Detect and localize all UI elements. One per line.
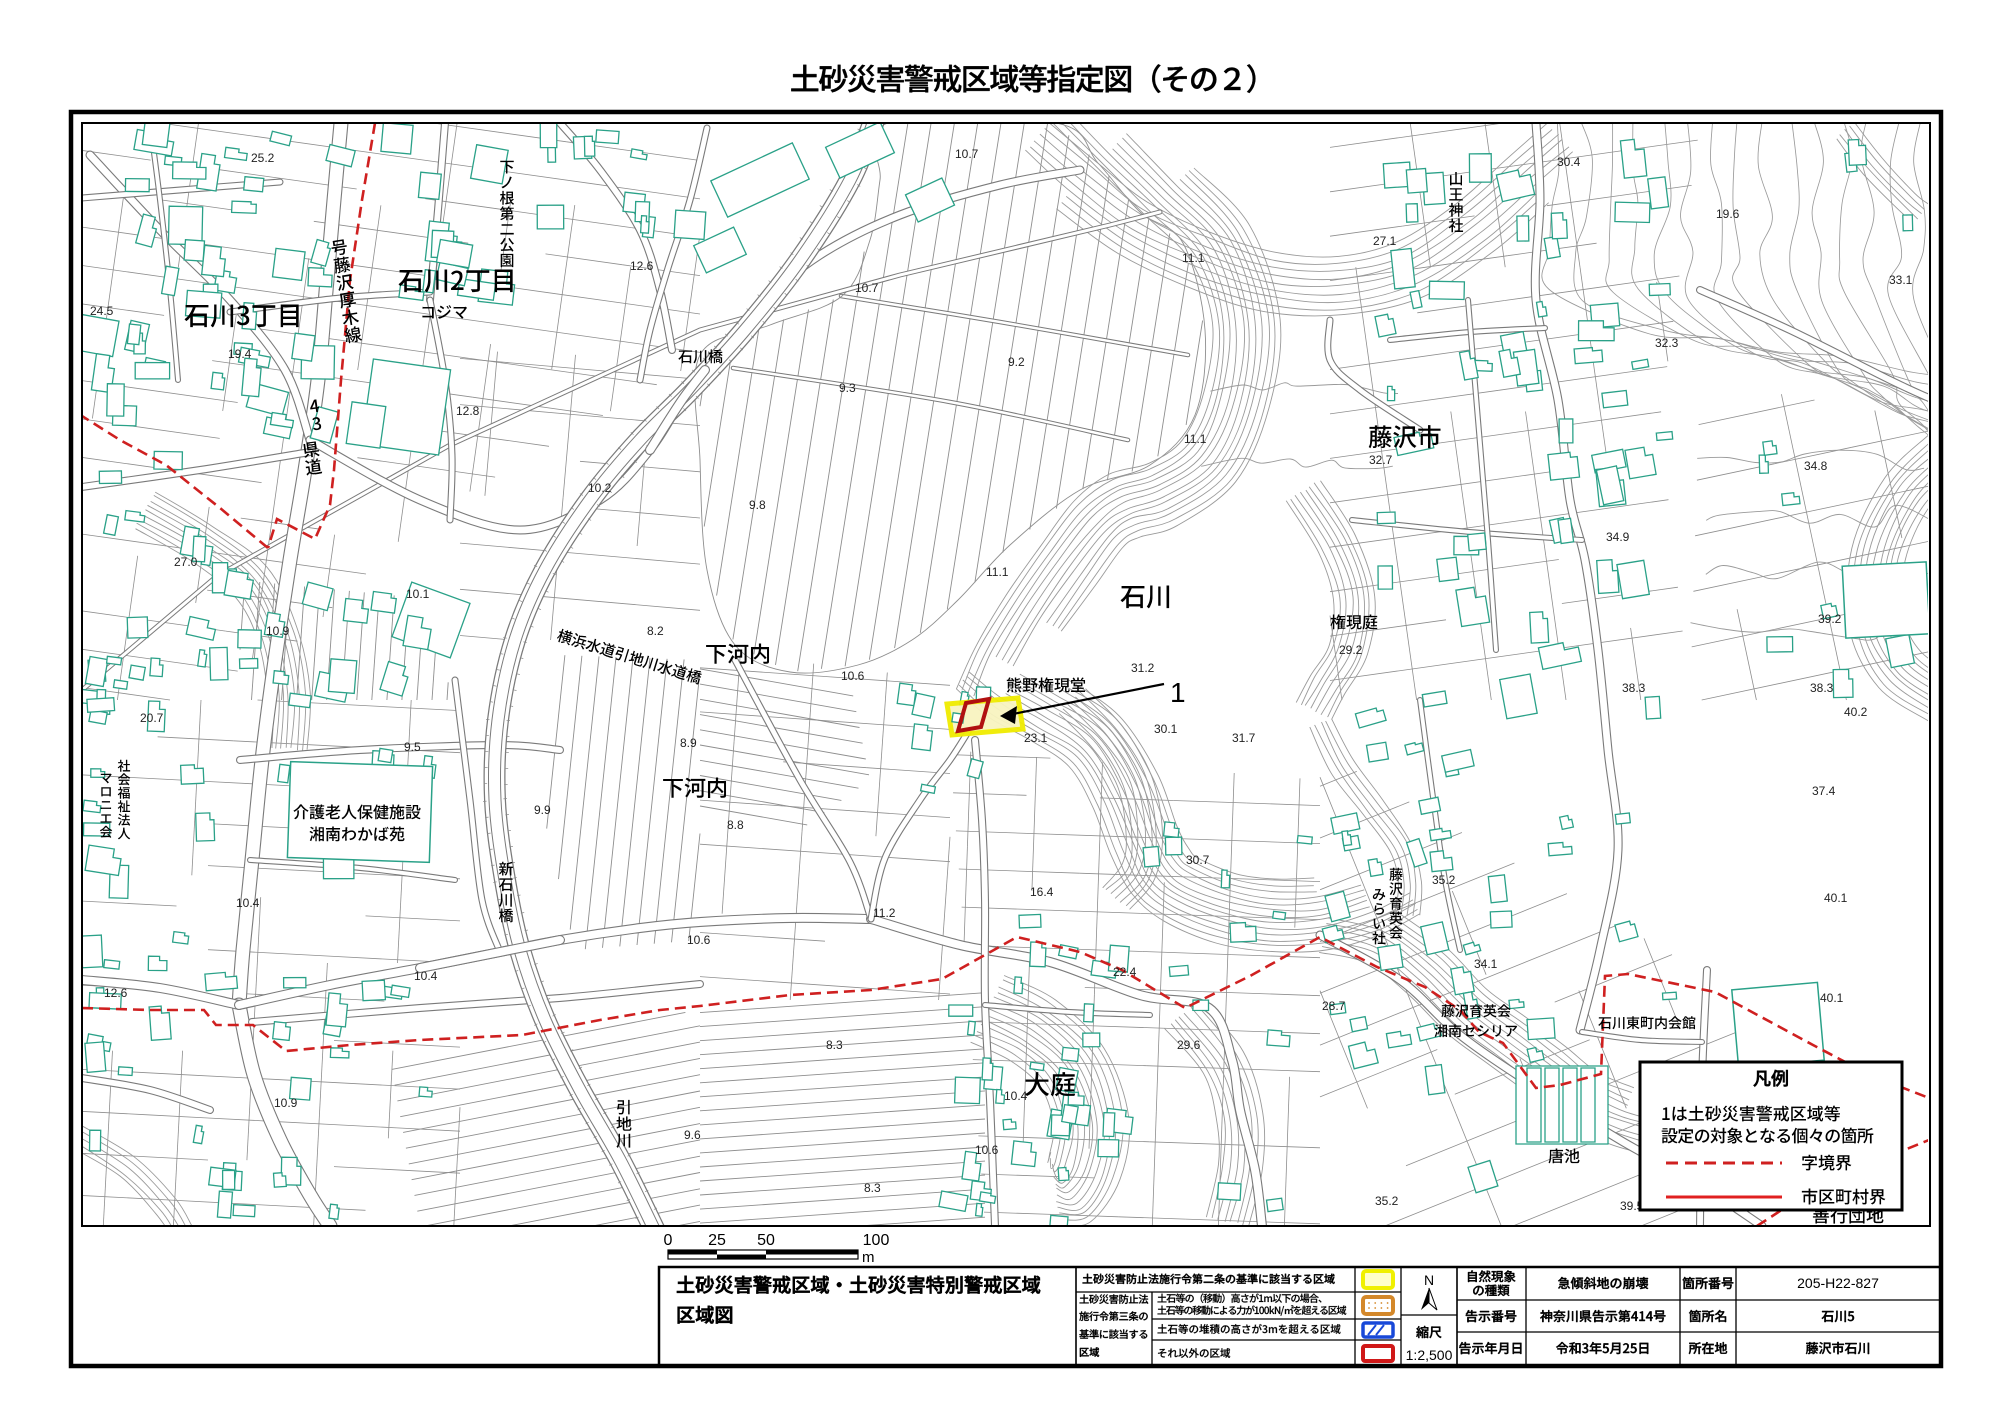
svg-text:30.1: 30.1 (1154, 722, 1178, 736)
svg-text:10.4: 10.4 (236, 896, 260, 910)
svg-text:11.2: 11.2 (873, 906, 896, 920)
svg-text:10.7: 10.7 (855, 281, 879, 295)
svg-text:30.7: 30.7 (1186, 853, 1210, 867)
svg-text:38.3: 38.3 (1810, 681, 1834, 695)
svg-text:1: 1 (1170, 677, 1186, 708)
svg-text:29.6: 29.6 (1177, 1038, 1201, 1052)
svg-text:40.2: 40.2 (1844, 705, 1868, 719)
svg-text:10.6: 10.6 (975, 1143, 999, 1157)
svg-text:10.1: 10.1 (406, 587, 430, 601)
svg-text:19.4: 19.4 (228, 347, 252, 361)
svg-text:8.3: 8.3 (864, 1181, 881, 1195)
svg-text:25.2: 25.2 (251, 151, 275, 165)
svg-text:9.6: 9.6 (684, 1128, 701, 1142)
svg-text:8.3: 8.3 (826, 1038, 843, 1052)
svg-text:50: 50 (757, 1232, 775, 1249)
svg-text:10.9: 10.9 (266, 624, 290, 638)
svg-text:9.9: 9.9 (534, 803, 551, 817)
svg-text:8.9: 8.9 (680, 736, 697, 750)
svg-text:100: 100 (863, 1232, 890, 1249)
svg-text:22.4: 22.4 (1113, 965, 1137, 979)
svg-text:9.2: 9.2 (1008, 355, 1025, 369)
svg-text:10.6: 10.6 (841, 669, 865, 683)
svg-text:40.1: 40.1 (1820, 991, 1844, 1005)
svg-text:24.5: 24.5 (90, 304, 114, 318)
svg-text:40.1: 40.1 (1824, 891, 1848, 905)
svg-text:9.8: 9.8 (749, 498, 766, 512)
svg-text:30.4: 30.4 (1557, 155, 1581, 169)
svg-text:12.6: 12.6 (104, 986, 128, 1000)
svg-text:34.1: 34.1 (1474, 957, 1498, 971)
svg-text:27.1: 27.1 (1373, 234, 1397, 248)
svg-text:34.8: 34.8 (1804, 459, 1828, 473)
svg-text:35.2: 35.2 (1432, 873, 1456, 887)
svg-text:8.2: 8.2 (647, 624, 664, 638)
svg-text:23.1: 23.1 (1024, 731, 1048, 745)
svg-text:11.1: 11.1 (986, 565, 1009, 579)
svg-text:12.8: 12.8 (456, 404, 480, 418)
svg-text:10.7: 10.7 (955, 147, 979, 161)
svg-text:25: 25 (708, 1232, 726, 1249)
svg-text:8.8: 8.8 (727, 818, 744, 832)
svg-text:27.0: 27.0 (174, 555, 198, 569)
svg-text:1:2,500: 1:2,500 (1406, 1347, 1453, 1363)
svg-text:205-H22-827: 205-H22-827 (1797, 1275, 1879, 1291)
svg-text:9.3: 9.3 (839, 381, 856, 395)
svg-text:0: 0 (664, 1232, 673, 1249)
svg-text:34.9: 34.9 (1606, 530, 1630, 544)
svg-text:28.7: 28.7 (1322, 999, 1346, 1013)
svg-text:16.4: 16.4 (1030, 885, 1054, 899)
svg-text:32.7: 32.7 (1369, 453, 1393, 467)
svg-text:11.1: 11.1 (1184, 432, 1207, 446)
svg-text:31.7: 31.7 (1232, 731, 1256, 745)
svg-text:10.9: 10.9 (274, 1096, 298, 1110)
svg-text:9.5: 9.5 (404, 740, 421, 754)
svg-text:11.1: 11.1 (1182, 251, 1205, 265)
svg-text:37.4: 37.4 (1812, 784, 1836, 798)
svg-text:38.3: 38.3 (1622, 681, 1646, 695)
svg-text:10.2: 10.2 (588, 481, 612, 495)
svg-text:10.6: 10.6 (687, 933, 711, 947)
svg-text:N: N (1424, 1272, 1434, 1288)
svg-text:32.3: 32.3 (1655, 336, 1679, 350)
svg-text:33.1: 33.1 (1889, 273, 1913, 287)
svg-text:39.2: 39.2 (1818, 612, 1842, 626)
svg-text:m: m (862, 1249, 875, 1266)
svg-text:20.7: 20.7 (140, 711, 164, 725)
svg-text:12.6: 12.6 (630, 259, 654, 273)
svg-text:10.4: 10.4 (414, 969, 438, 983)
svg-text:29.2: 29.2 (1339, 643, 1363, 657)
svg-text:31.2: 31.2 (1131, 661, 1155, 675)
svg-text:35.2: 35.2 (1375, 1194, 1399, 1208)
svg-text:19.6: 19.6 (1716, 207, 1740, 221)
svg-text:10.4: 10.4 (1004, 1089, 1028, 1103)
